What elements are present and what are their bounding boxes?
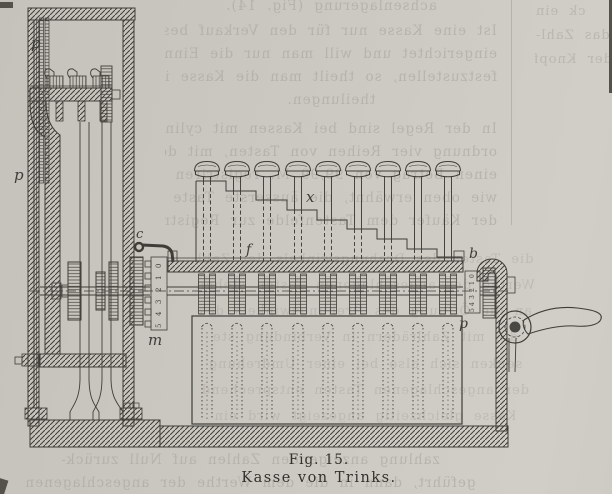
scale-right-digit: 4 [469,302,476,306]
label-p-right: p [459,316,468,332]
scale-left-digit: 5 [155,324,163,328]
label-p-left: p [14,166,24,184]
staircase-guide [196,181,462,262]
scale-right-digit: 0 [469,274,476,278]
scale-right-digit: 3 [469,295,476,299]
plunger-keys [195,162,461,262]
scale-right-digit: 1 [469,281,476,285]
scanned-book-page: achsenlagerung (Fig. 14). Ist eine Kasse… [0,0,612,494]
scale-left-digit: 0 [155,264,163,268]
label-x: x [306,188,315,206]
scale-left-digit: 2 [155,288,163,292]
scale-left-digit: 3 [155,300,163,304]
figure-drawing: 0 1 2 3 4 5 [0,0,612,494]
label-b: b [469,246,478,262]
gear-train [68,257,143,325]
scale-right-digit: 2 [469,288,476,292]
scan-artifact [0,2,13,8]
right-wall [477,259,516,431]
scale-left: 0 1 2 3 4 5 [145,257,167,330]
scale-right-digit: 5 [469,308,476,312]
scale-left-digit: 1 [155,276,163,280]
figure-number: Fig. 15. [24,452,612,468]
crossbar [40,354,126,367]
left-frame [15,8,142,426]
scale-left-digit: 4 [155,311,163,316]
drawer-box [192,316,462,424]
rack-segments [199,274,457,314]
label-f: f [245,242,254,258]
label-m: m [148,331,162,349]
crank-handle [499,308,601,344]
figure-title: Kasse von Trinks. [24,470,612,486]
key-plate [168,251,464,272]
label-c: c [136,227,144,242]
plunger-stems [204,176,452,261]
label-p-top: p [31,34,41,52]
